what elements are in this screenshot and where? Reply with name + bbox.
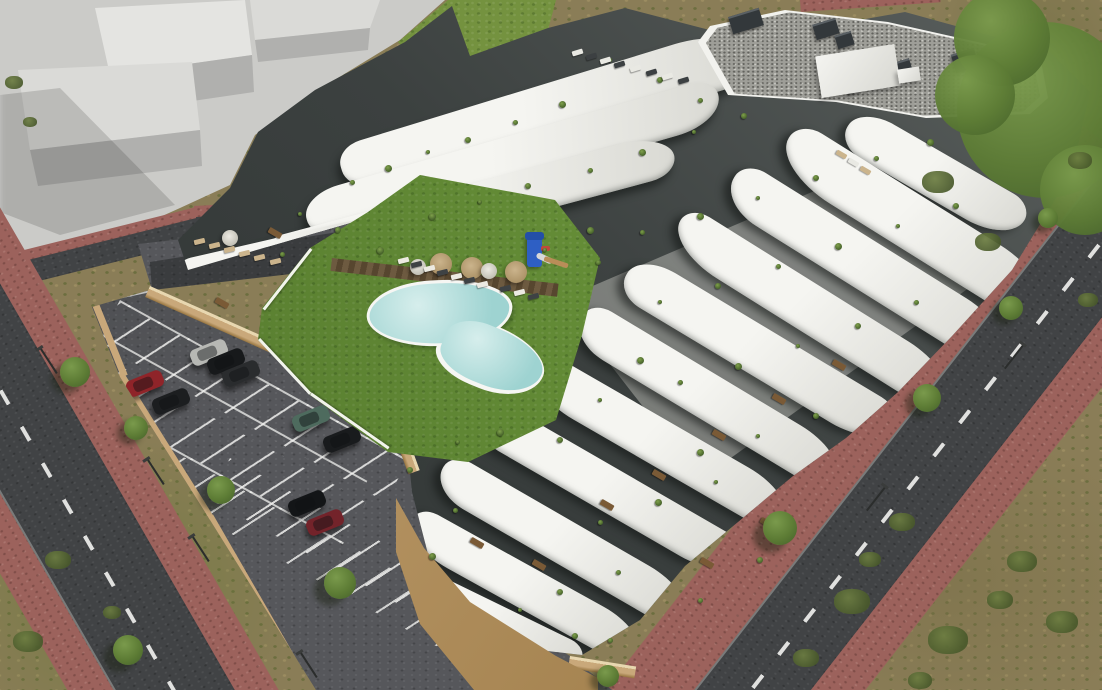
aerial-render-scene	[0, 0, 1102, 690]
street-lamp	[147, 459, 165, 485]
street-lamp-head	[142, 456, 150, 463]
street-lamp-head	[187, 533, 195, 540]
street-lamps-layer	[0, 0, 1102, 690]
street-lamp-head	[881, 482, 889, 489]
street-lamp	[300, 652, 318, 678]
street-lamp-head	[295, 649, 303, 656]
street-lamp	[1004, 344, 1024, 369]
street-lamp-head	[1019, 340, 1027, 347]
street-lamp	[40, 348, 58, 374]
street-lamp	[192, 536, 210, 562]
street-lamp-head	[35, 345, 43, 352]
street-lamp	[866, 486, 886, 511]
